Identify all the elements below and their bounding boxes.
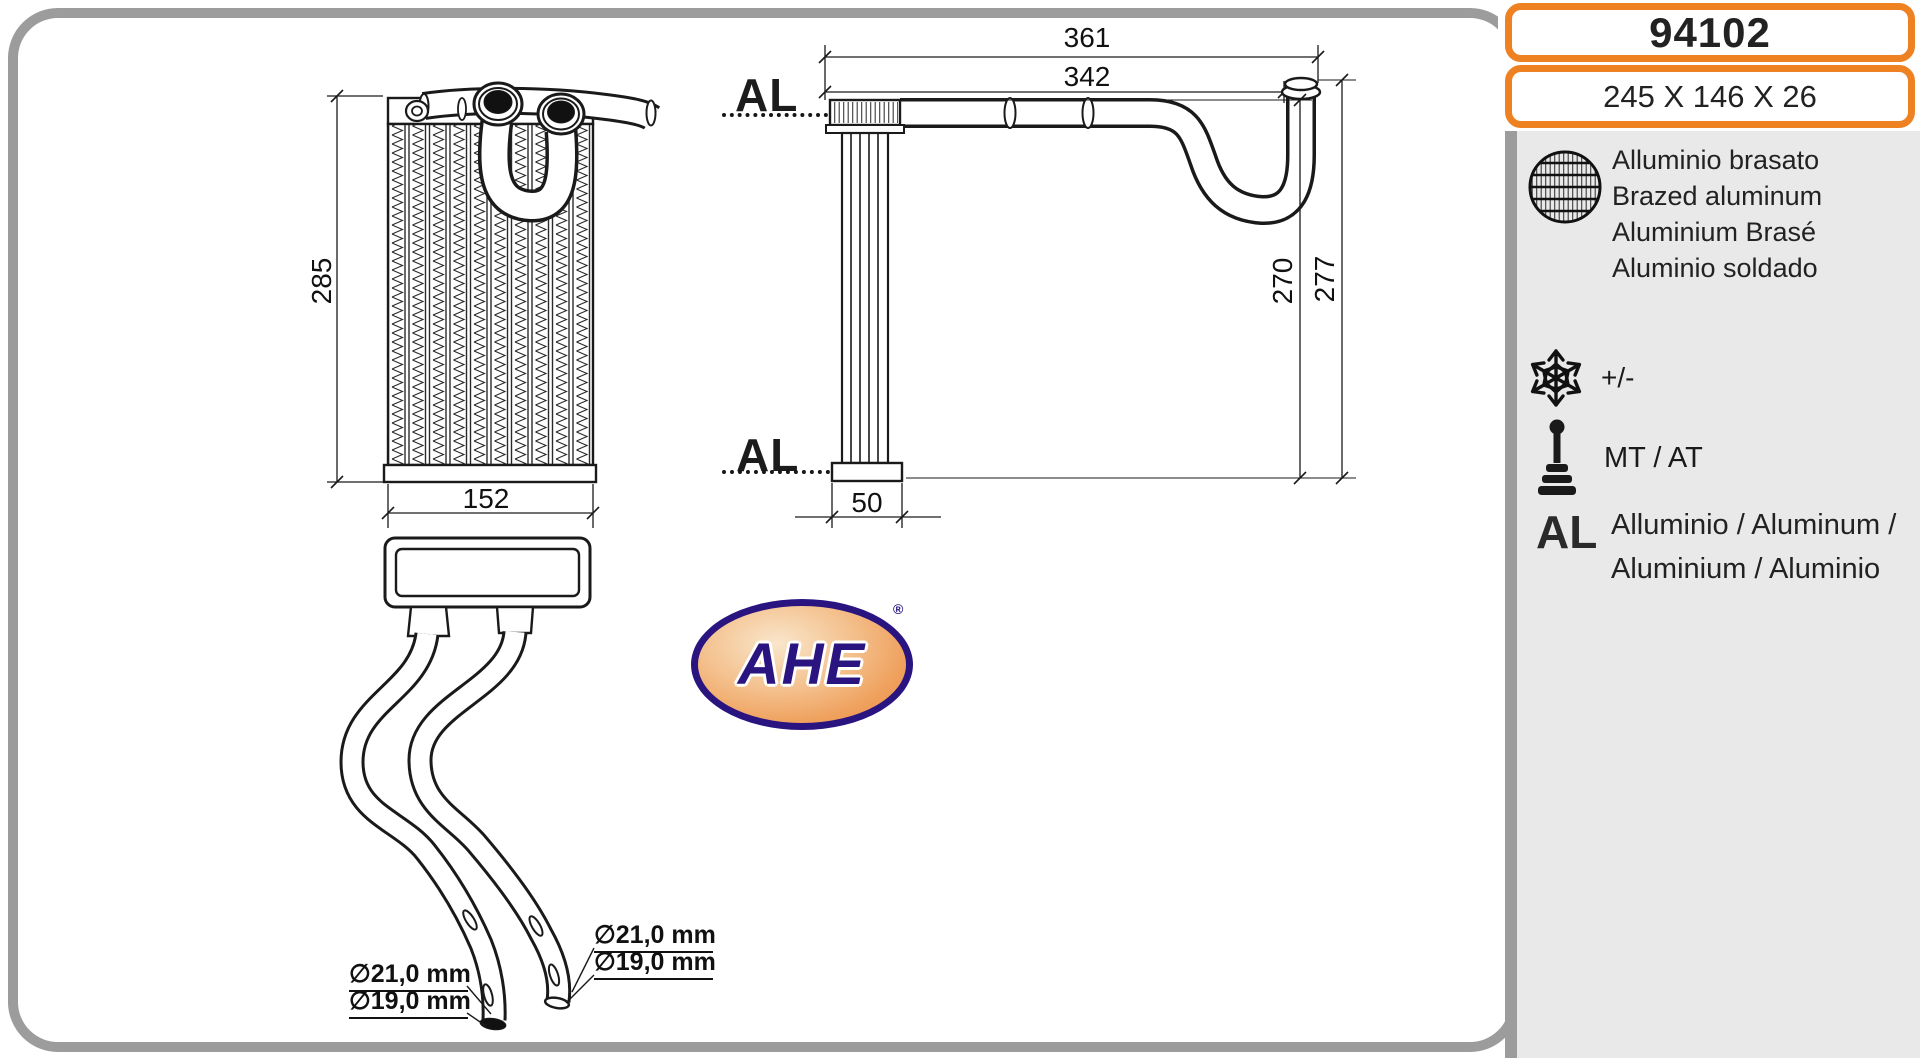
ahe-logo: AHE <box>691 599 913 730</box>
ahe-logo-text: AHE <box>738 631 866 698</box>
page-frame-border <box>8 8 1520 1052</box>
material-line-it: Alluminio brasato <box>1612 145 1819 176</box>
registered-mark: ® <box>893 601 903 617</box>
pipe-diameter-right-inner: ∅19,0 mm <box>594 947 713 980</box>
part-number-box: 94102 <box>1505 3 1915 62</box>
dim-361: 361 <box>1037 22 1137 54</box>
pipe-diameter-left-inner: ∅19,0 mm <box>349 986 468 1019</box>
catalog-page: 94102 245 X 146 X 26 <box>0 0 1920 1058</box>
al-legend-line-2: Aluminium / Aluminio <box>1611 553 1880 586</box>
al-leader-dotted-bottom <box>722 470 830 474</box>
part-size-box: 245 X 146 X 26 <box>1505 65 1915 128</box>
transmission-label: MT / AT <box>1604 442 1703 475</box>
material-line-fr: Aluminium Brasé <box>1612 217 1816 248</box>
dim-277: 277 <box>1311 229 1339 329</box>
dim-50: 50 <box>832 487 902 519</box>
al-legend-line-1: Alluminio / Aluminum / <box>1611 509 1896 542</box>
part-size: 245 X 146 X 26 <box>1603 79 1817 115</box>
dim-270: 270 <box>1269 231 1297 331</box>
dim-342: 342 <box>1037 61 1137 93</box>
dim-152: 152 <box>436 483 536 515</box>
dim-285: 285 <box>308 231 336 331</box>
part-number: 94102 <box>1649 9 1771 57</box>
material-line-en: Brazed aluminum <box>1612 181 1822 212</box>
al-leader-dotted-top <box>722 113 828 117</box>
al-legend-abbr: AL <box>1536 505 1597 559</box>
material-line-es: Aluminio soldado <box>1612 253 1818 284</box>
temp-tolerance-label: +/- <box>1601 362 1634 394</box>
